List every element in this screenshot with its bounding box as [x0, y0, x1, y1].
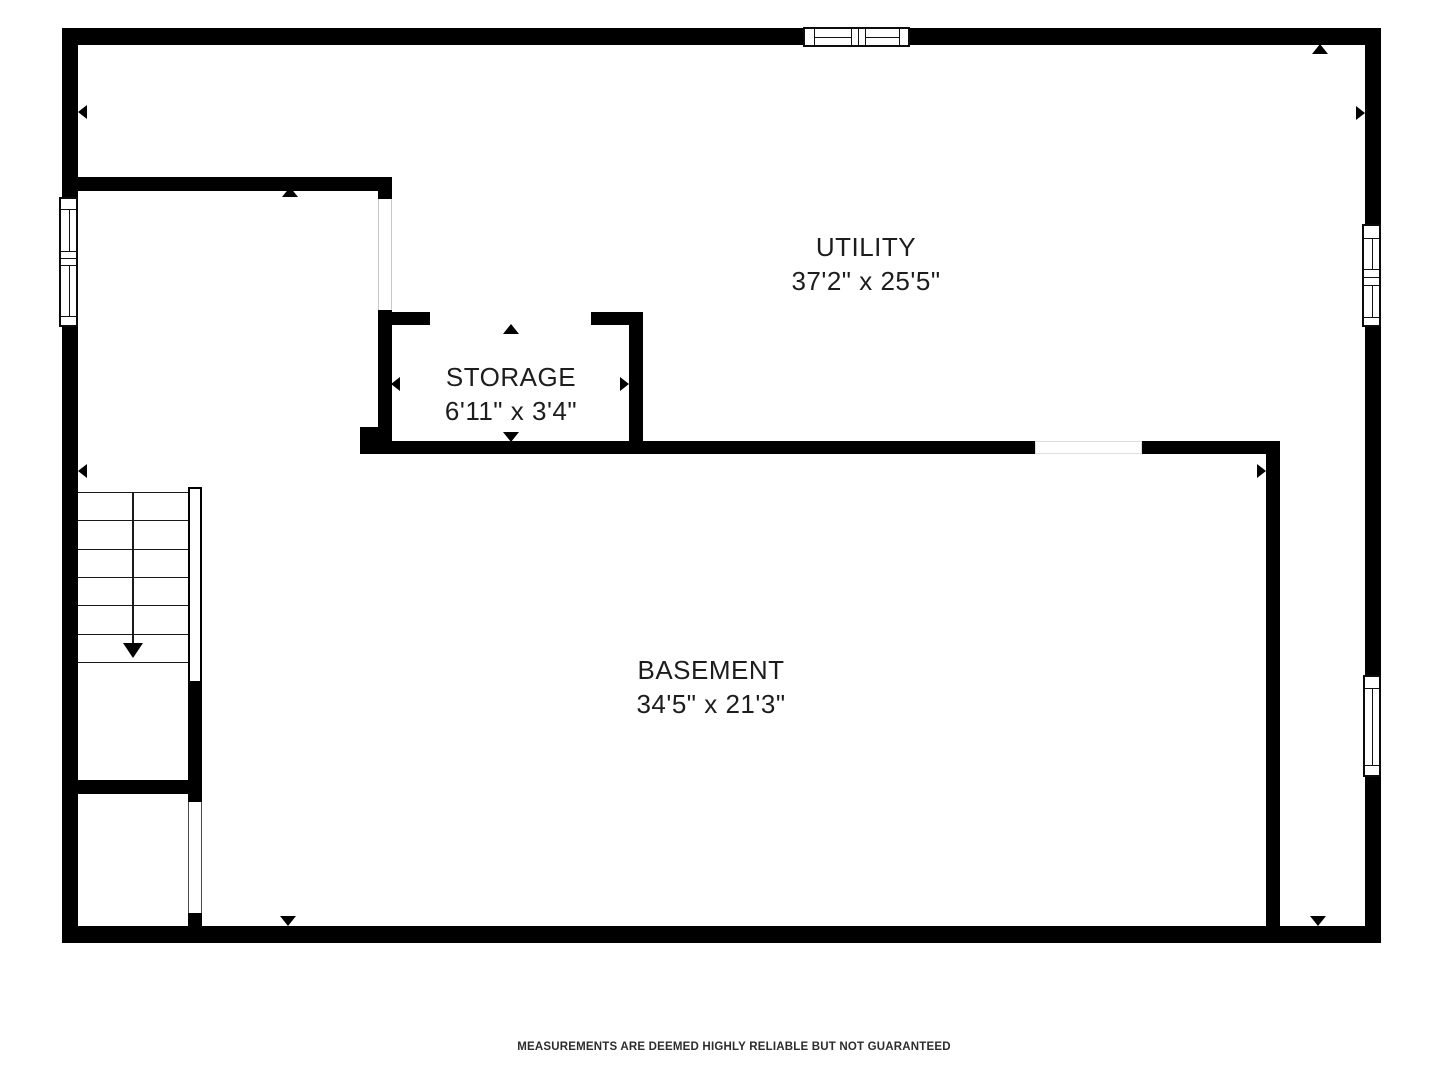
- room-dimensions: 6'11" x 3'4": [445, 394, 577, 428]
- window-utility-right: [1362, 224, 1381, 327]
- window-frame-line: [61, 258, 76, 259]
- opening-marker-left-icon: [78, 464, 87, 478]
- opening-marker-down-icon: [280, 916, 296, 926]
- window-frame-line: [61, 316, 76, 317]
- opening-marker-left-icon: [391, 377, 400, 391]
- window-frame-line: [61, 251, 76, 252]
- floor-plan: UTILITY 37'2" x 25'5" STORAGE 6'11" x 3'…: [0, 0, 1440, 1080]
- window-frame-line: [1364, 277, 1379, 278]
- opening-marker-right-icon: [620, 377, 629, 391]
- stair-down-arrow-icon: [123, 643, 143, 658]
- opening-marker-down-icon: [503, 432, 519, 442]
- window-frame-line: [851, 29, 852, 45]
- wall-closet-door-stub: [188, 913, 202, 933]
- window-frame-line: [1364, 269, 1379, 270]
- opening-marker-up-icon: [282, 187, 298, 197]
- wall-basement-right: [1266, 441, 1280, 937]
- room-name: STORAGE: [445, 360, 577, 394]
- wall-utility-nook-endcap: [378, 177, 392, 199]
- window-frame-line: [1364, 317, 1379, 318]
- wall-closet-top: [62, 780, 188, 794]
- wall-outer-bottom: [62, 926, 1381, 943]
- doorway-stairhall-utility: [378, 199, 392, 310]
- window-glass-line: [814, 37, 851, 38]
- wall-outer-right: [1365, 28, 1381, 943]
- storage-room-label: STORAGE 6'11" x 3'4": [445, 360, 577, 428]
- wall-stair-side: [188, 683, 202, 802]
- opening-marker-right-icon: [1257, 464, 1266, 478]
- window-glass-line: [1372, 285, 1373, 317]
- wall-storage-top-left: [378, 312, 430, 325]
- window-glass-line: [69, 265, 70, 316]
- window-frame-line: [858, 29, 859, 45]
- stair-stringer: [188, 487, 202, 683]
- room-dimensions: 37'2" x 25'5": [791, 264, 940, 298]
- doorway-closet: [188, 802, 202, 913]
- opening-marker-left-icon: [78, 105, 87, 119]
- wall-basement-top-long: [360, 441, 1035, 454]
- window-stairhall-left: [59, 197, 78, 327]
- window-glass-line: [1372, 688, 1373, 765]
- doorway-utility-basement: [1035, 441, 1142, 454]
- opening-marker-up-icon: [503, 324, 519, 334]
- window-glass-line: [1372, 238, 1373, 269]
- window-frame-line: [1365, 765, 1379, 766]
- stair-run-line: [132, 493, 134, 651]
- wall-outer-top: [62, 28, 1381, 45]
- wall-basement-top-right: [1142, 441, 1280, 454]
- disclaimer-text: MEASUREMENTS ARE DEEMED HIGHLY RELIABLE …: [517, 1041, 951, 1053]
- utility-room-label: UTILITY 37'2" x 25'5": [791, 230, 940, 298]
- wall-utility-nook: [62, 177, 392, 191]
- opening-marker-down-icon: [1310, 916, 1326, 926]
- window-frame-line: [899, 29, 900, 45]
- opening-marker-right-icon: [1356, 106, 1365, 120]
- wall-outer-left: [62, 28, 78, 943]
- room-name: UTILITY: [791, 230, 940, 264]
- staircase: [78, 492, 188, 663]
- window-glass-line: [69, 209, 70, 251]
- room-name: BASEMENT: [636, 653, 785, 687]
- opening-marker-up-icon: [1312, 44, 1328, 54]
- window-utility-top: [803, 27, 910, 47]
- basement-room-label: BASEMENT 34'5" x 21'3": [636, 653, 785, 721]
- room-dimensions: 34'5" x 21'3": [636, 687, 785, 721]
- window-basement-right: [1363, 675, 1381, 777]
- window-glass-line: [865, 37, 899, 38]
- wall-storage-right: [629, 312, 643, 454]
